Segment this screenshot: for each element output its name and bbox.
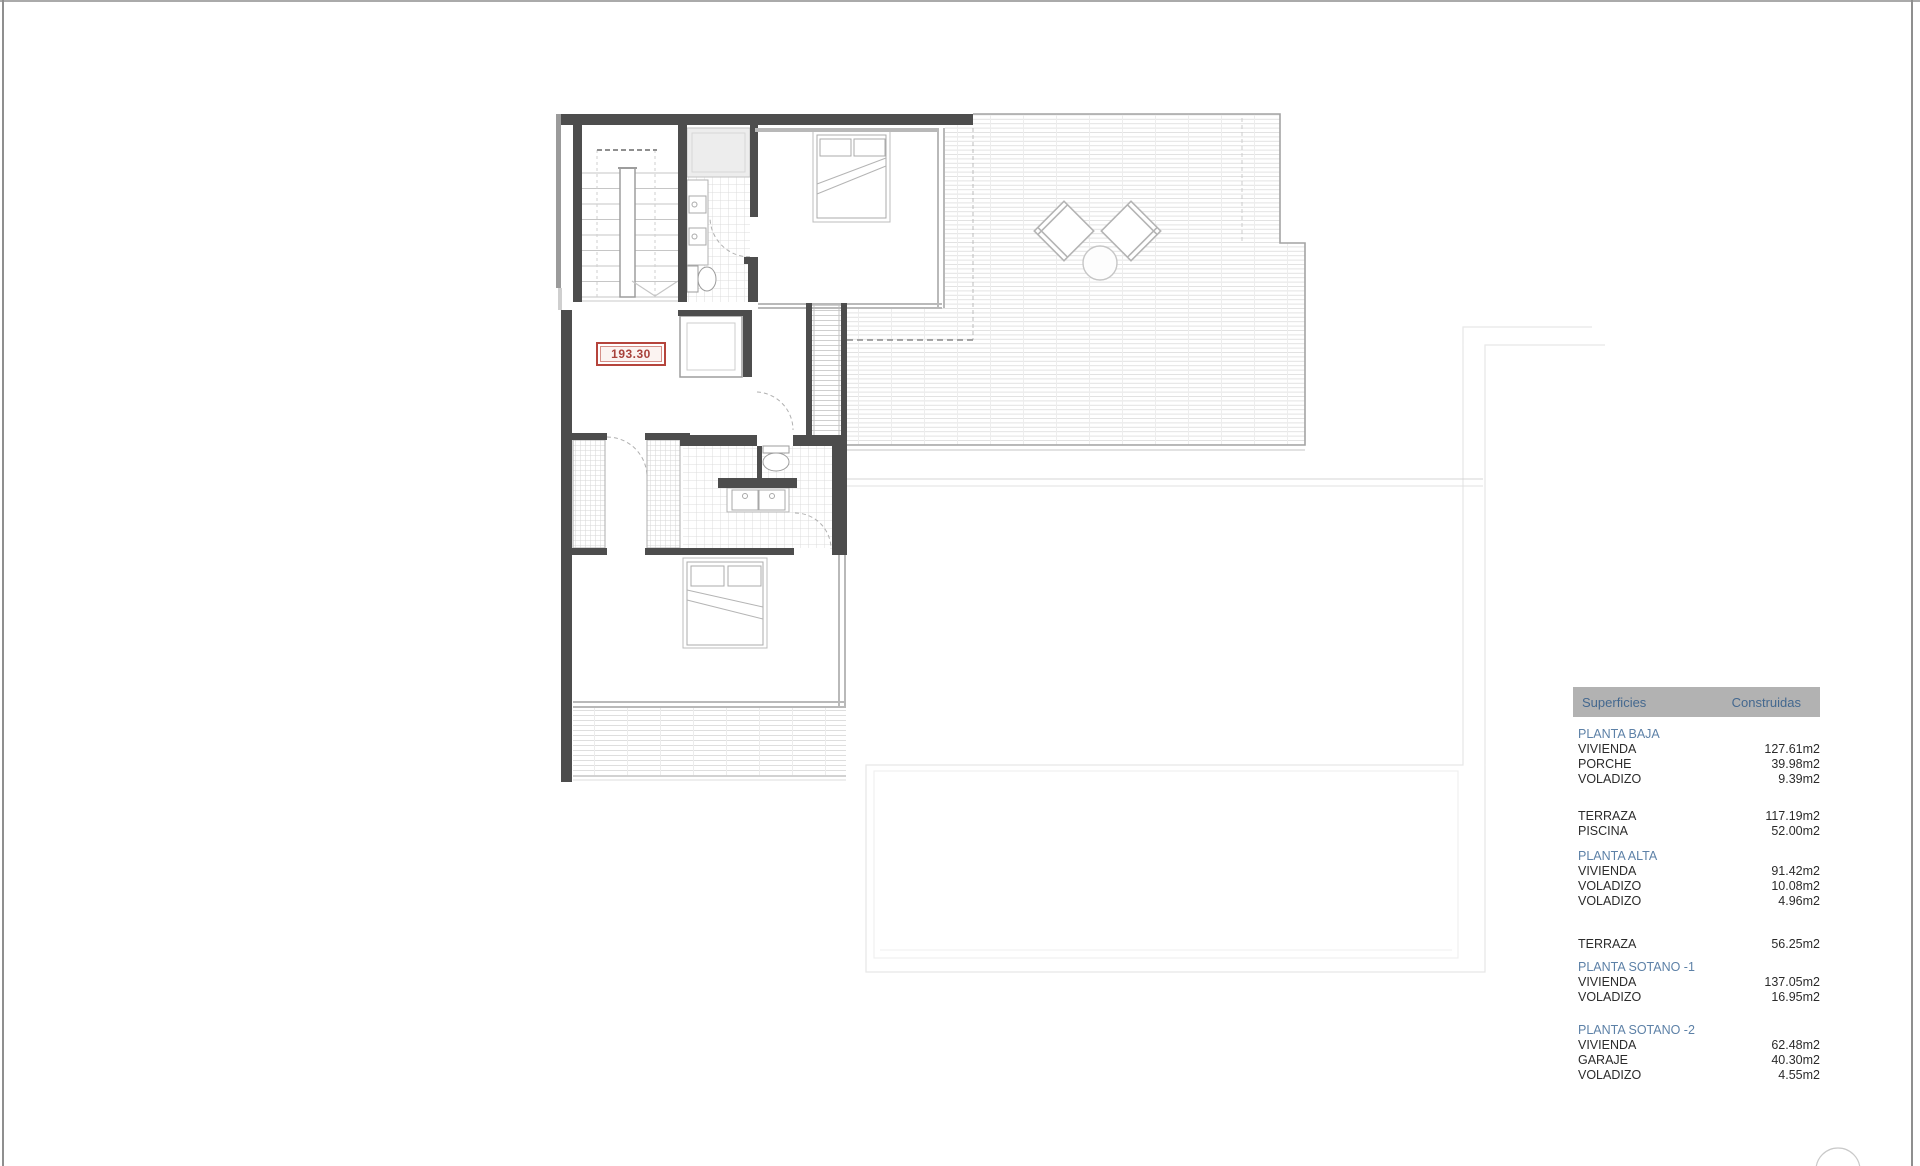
table-row-label: VIVIENDA <box>1578 742 1636 757</box>
table-row: VIVIENDA91.42m2 <box>1573 864 1820 879</box>
table-row-label: TERRAZA <box>1578 937 1636 952</box>
table-row-value: 62.48m2 <box>1771 1038 1820 1053</box>
sink-icon <box>687 180 708 265</box>
table-row-value: 52.00m2 <box>1771 824 1820 839</box>
table-group: PLANTA BAJAVIVIENDA127.61m2PORCHE39.98m2… <box>1573 727 1820 787</box>
table-row-value: 127.61m2 <box>1764 742 1820 757</box>
terrace-bottom <box>573 708 846 780</box>
table-row-label: PORCHE <box>1578 757 1631 772</box>
table-row: TERRAZA56.25m2 <box>1573 937 1820 952</box>
door-swing-arc <box>607 437 647 477</box>
wardrobes <box>573 437 680 548</box>
wardrobe-icon <box>647 440 680 548</box>
table-section-title: PLANTA SOTANO -1 <box>1573 960 1820 975</box>
bathroom-top <box>687 128 750 302</box>
table-row-label: VOLADIZO <box>1578 1068 1641 1083</box>
drawing-sheet: 193.30 Superficies Construidas PLANTA BA… <box>0 0 1920 1166</box>
surface-table-groups: PLANTA BAJAVIVIENDA127.61m2PORCHE39.98m2… <box>1573 727 1820 1083</box>
table-row-label: GARAJE <box>1578 1053 1628 1068</box>
table-row-value: 10.08m2 <box>1771 879 1820 894</box>
table-row: VOLADIZO9.39m2 <box>1573 772 1820 787</box>
table-row-label: PISCINA <box>1578 824 1628 839</box>
table-row-value: 40.30m2 <box>1771 1053 1820 1068</box>
table-row: VIVIENDA137.05m2 <box>1573 975 1820 990</box>
table-row-value: 117.19m2 <box>1765 809 1820 824</box>
table-group: PLANTA ALTAVIVIENDA91.42m2VOLADIZO10.08m… <box>1573 849 1820 909</box>
table-row: VOLADIZO10.08m2 <box>1573 879 1820 894</box>
table-section-title: PLANTA ALTA <box>1573 849 1820 864</box>
table-group: TERRAZA56.25m2 <box>1573 937 1820 952</box>
bed-bottom-icon <box>683 558 767 648</box>
surface-table-header-col2: Construidas <box>1732 695 1801 710</box>
door-swing-arc <box>757 392 793 430</box>
table-row-value: 4.96m2 <box>1778 894 1820 909</box>
sink-icon <box>727 488 789 512</box>
table-row-value: 91.42m2 <box>1771 864 1820 879</box>
shower-icon <box>687 128 750 177</box>
bed-top-icon <box>813 131 890 222</box>
table-row: VOLADIZO16.95m2 <box>1573 990 1820 1005</box>
toilet-icon <box>763 446 789 471</box>
sheet-border-left <box>2 0 4 1166</box>
table-row-value: 16.95m2 <box>1771 990 1820 1005</box>
toilet-icon <box>687 266 716 292</box>
side-table-icon <box>1083 246 1117 280</box>
table-row-label: VOLADIZO <box>1578 990 1641 1005</box>
table-section-title: PLANTA SOTANO -2 <box>1573 1023 1820 1038</box>
table-group: PLANTA SOTANO -2VIVIENDA62.48m2GARAJE40.… <box>1573 1023 1820 1083</box>
table-group: PLANTA SOTANO -1VIVIENDA137.05m2VOLADIZO… <box>1573 960 1820 1005</box>
sheet-border-right <box>1911 0 1913 1166</box>
wardrobe-icon <box>573 440 605 548</box>
table-row-value: 4.55m2 <box>1778 1068 1820 1083</box>
table-row-value: 56.25m2 <box>1771 937 1820 952</box>
table-row-label: VOLADIZO <box>1578 894 1641 909</box>
area-label: 193.30 <box>596 342 666 366</box>
table-row-value: 39.98m2 <box>1771 757 1820 772</box>
table-row: TERRAZA117.19m2 <box>1573 809 1820 824</box>
table-row-label: TERRAZA <box>1578 809 1636 824</box>
table-row-label: VIVIENDA <box>1578 1038 1636 1053</box>
elevator-icon <box>680 316 742 377</box>
table-row-value: 137.05m2 <box>1764 975 1820 990</box>
surface-table-header: Superficies Construidas <box>1573 687 1820 717</box>
table-group: TERRAZA117.19m2PISCINA52.00m2 <box>1573 809 1820 839</box>
table-row-label: VIVIENDA <box>1578 864 1636 879</box>
table-row: PORCHE39.98m2 <box>1573 757 1820 772</box>
table-row: VIVIENDA62.48m2 <box>1573 1038 1820 1053</box>
table-row: VOLADIZO4.96m2 <box>1573 894 1820 909</box>
table-row-value: 9.39m2 <box>1778 772 1820 787</box>
exterior-stairs-icon <box>812 303 841 435</box>
surface-table-header-col1: Superficies <box>1582 695 1646 710</box>
table-row: PISCINA52.00m2 <box>1573 824 1820 839</box>
detail-circle <box>1816 1148 1860 1166</box>
staircase-icon <box>573 150 678 301</box>
table-row: VIVIENDA127.61m2 <box>1573 742 1820 757</box>
surface-area-table: Superficies Construidas PLANTA BAJAVIVIE… <box>1573 687 1820 1083</box>
terrace-main <box>847 114 1305 450</box>
table-row-label: VIVIENDA <box>1578 975 1636 990</box>
table-section-title: PLANTA BAJA <box>1573 727 1820 742</box>
sheet-border-top <box>0 0 1920 2</box>
table-row-label: VOLADIZO <box>1578 879 1641 894</box>
table-row-label: VOLADIZO <box>1578 772 1641 787</box>
table-row: GARAJE40.30m2 <box>1573 1053 1820 1068</box>
table-row: VOLADIZO4.55m2 <box>1573 1068 1820 1083</box>
